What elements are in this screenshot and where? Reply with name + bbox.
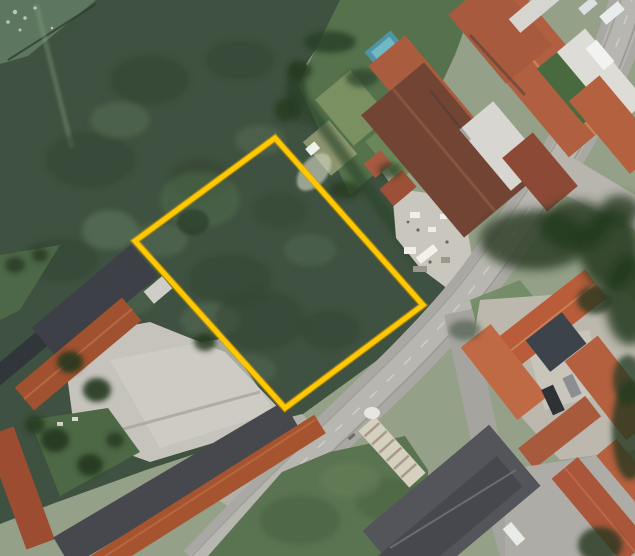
map-canvas[interactable]: Aerial photograph of a rural village: a … (0, 0, 635, 556)
aerial-image: Aerial photograph of a rural village: a … (0, 0, 635, 556)
field-bush (177, 209, 209, 235)
